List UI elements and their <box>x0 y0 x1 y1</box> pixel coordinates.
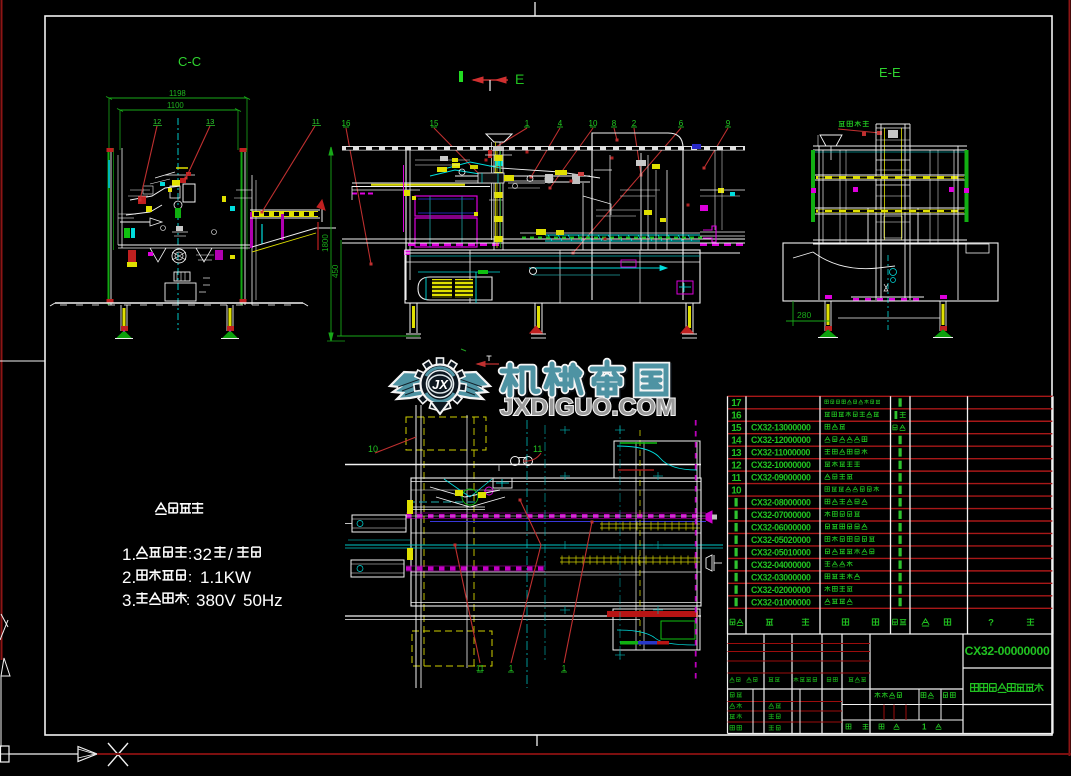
svg-text:13: 13 <box>731 448 742 459</box>
svg-text:CX32-04000000: CX32-04000000 <box>751 560 811 570</box>
svg-text::: : <box>186 592 190 609</box>
svg-text:CX32-09000000: CX32-09000000 <box>751 473 811 483</box>
svg-text:CX32-11000000: CX32-11000000 <box>751 448 810 458</box>
svg-text:11: 11 <box>533 444 542 454</box>
svg-text:1100: 1100 <box>167 101 184 110</box>
svg-text:280: 280 <box>797 310 811 320</box>
svg-text:1.1KW: 1.1KW <box>200 568 251 587</box>
svg-text:12: 12 <box>153 117 161 126</box>
svg-text:11: 11 <box>312 117 320 126</box>
svg-text::: : <box>188 546 192 563</box>
svg-text:CX32-03000000: CX32-03000000 <box>751 572 811 582</box>
svg-text:?: ? <box>988 618 994 629</box>
svg-text:1198: 1198 <box>169 89 186 98</box>
svg-text:11: 11 <box>732 473 742 484</box>
svg-text:JXDIGUO.COM: JXDIGUO.COM <box>500 394 676 421</box>
svg-text:17: 17 <box>731 398 742 409</box>
svg-text:CX32-13000000: CX32-13000000 <box>751 423 811 433</box>
svg-text:16: 16 <box>731 411 742 422</box>
svg-text:CX32-07000000: CX32-07000000 <box>751 510 811 520</box>
svg-text:JX: JX <box>432 377 449 392</box>
svg-text:CX32-05010000: CX32-05010000 <box>751 547 811 557</box>
svg-text:1800: 1800 <box>321 234 330 252</box>
svg-text:CX32-01000000: CX32-01000000 <box>751 597 811 607</box>
svg-text::: : <box>188 569 192 586</box>
svg-text:13: 13 <box>206 117 214 126</box>
svg-text:1.: 1. <box>122 545 136 564</box>
svg-text:C-C: C-C <box>178 54 201 69</box>
svg-text:380V: 380V <box>196 591 236 610</box>
svg-text:14: 14 <box>731 435 742 446</box>
svg-text:12: 12 <box>731 460 742 471</box>
svg-text:50Hz: 50Hz <box>243 591 283 610</box>
svg-text:3.: 3. <box>122 591 136 610</box>
svg-text:/: / <box>228 545 233 564</box>
svg-text:CX32-02000000: CX32-02000000 <box>751 585 811 595</box>
svg-text:E-E: E-E <box>879 65 901 80</box>
svg-text:1: 1 <box>922 723 927 732</box>
svg-text:32: 32 <box>193 545 212 564</box>
svg-text:CX32-08000000: CX32-08000000 <box>751 497 811 507</box>
svg-text:CX32-06000000: CX32-06000000 <box>751 522 811 532</box>
svg-text:CX32-10000000: CX32-10000000 <box>751 460 811 470</box>
svg-text:2.: 2. <box>122 568 136 587</box>
svg-text:CX32-12000000: CX32-12000000 <box>751 435 811 445</box>
svg-text:CX32-05020000: CX32-05020000 <box>751 535 811 545</box>
svg-text:E: E <box>515 71 524 87</box>
svg-text:10: 10 <box>731 485 742 496</box>
svg-text:15: 15 <box>731 423 742 434</box>
svg-text:CX32-00000000: CX32-00000000 <box>965 644 1050 658</box>
svg-text:450: 450 <box>331 264 340 278</box>
